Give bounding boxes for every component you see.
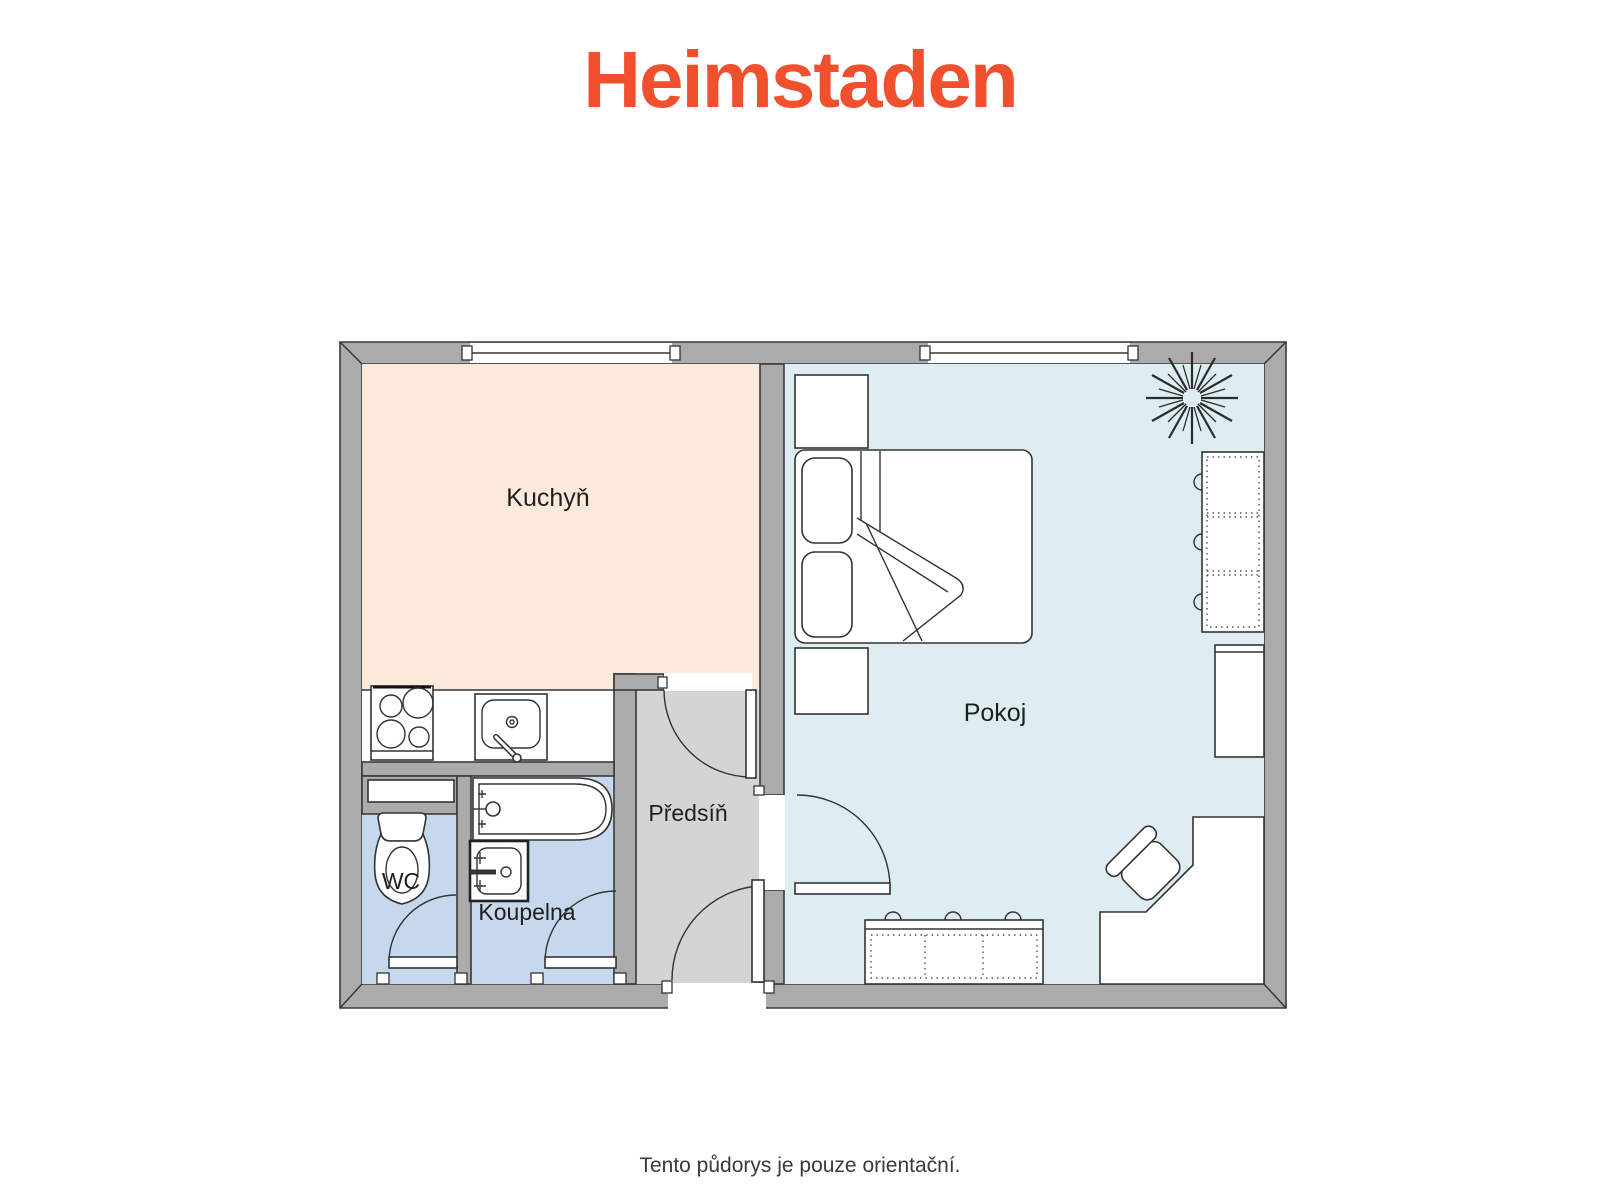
room-kuchyn-floor xyxy=(362,364,760,690)
cabinet xyxy=(1215,645,1264,757)
nightstand-lower xyxy=(795,648,868,714)
label-kuchyn: Kuchyň xyxy=(506,484,589,512)
opening-predsin-pokoj xyxy=(759,795,785,890)
pillow xyxy=(802,552,852,637)
kitchen-sink xyxy=(475,694,547,762)
stove xyxy=(371,686,433,760)
wardrobe xyxy=(1194,452,1264,632)
pillow xyxy=(802,458,852,543)
label-predsin: Předsíň xyxy=(648,800,727,826)
label-koupelna: Koupelna xyxy=(478,899,575,925)
dresser xyxy=(865,912,1043,984)
window-pokoj xyxy=(920,343,1138,363)
disclaimer-text: Tento půdorys je pouze orientační. xyxy=(0,1154,1600,1178)
washbasin xyxy=(470,841,528,901)
label-pokoj: Pokoj xyxy=(964,699,1027,727)
bed xyxy=(795,450,1032,643)
opening-kuchyn-predsin xyxy=(664,673,752,691)
heimstaden-logo: Heimstaden xyxy=(0,40,1600,120)
label-wc: WC xyxy=(382,868,420,894)
opening-entrance xyxy=(668,983,766,1010)
floor-plan: Kuchyň Pokoj Předsíň WC Koupelna xyxy=(330,332,1300,1022)
window-kuchyn xyxy=(462,343,680,363)
bathtub xyxy=(473,778,612,840)
wc-shelf xyxy=(368,780,454,802)
nightstand-upper xyxy=(795,375,868,448)
floor-plan-svg: Kuchyň Pokoj Předsíň WC Koupelna xyxy=(330,332,1300,1022)
room-predsin-floor xyxy=(636,690,760,984)
